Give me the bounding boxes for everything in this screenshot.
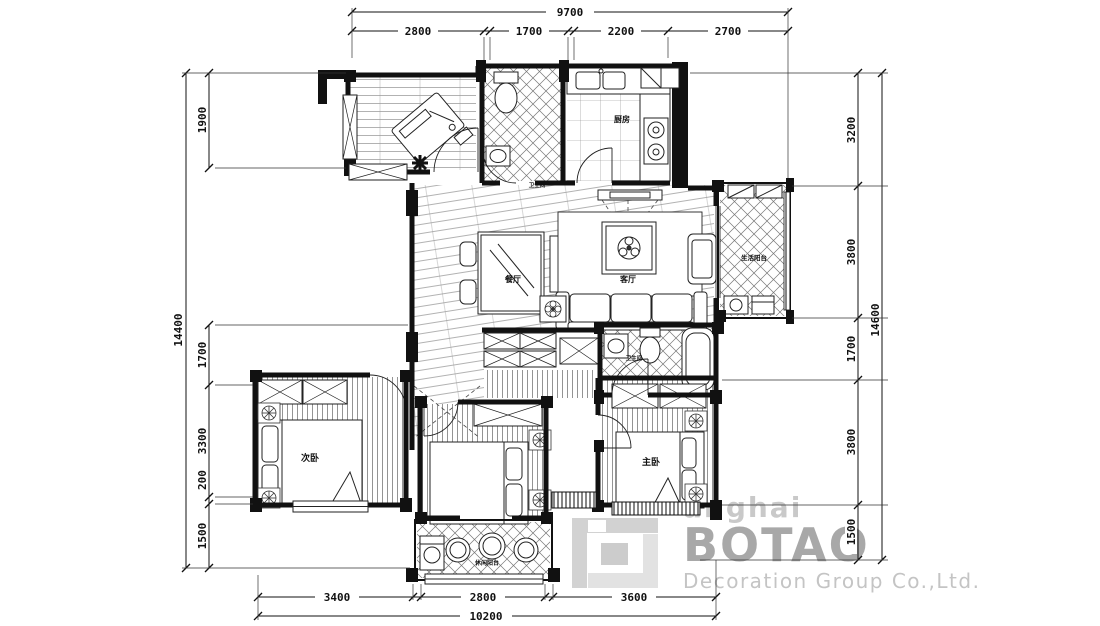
floor-plan-drawing: anghai BOTAO Decoration Group Co.,Ltd. (0, 0, 1100, 626)
botao-logo (572, 518, 658, 588)
sink-top (486, 146, 510, 166)
label-balcony-bottom: 休闲阳台 (474, 559, 499, 567)
side-table-flower-left (545, 301, 561, 317)
dim-left-seg-2: 3300 (196, 428, 209, 455)
dim-right-seg-2: 1700 (845, 336, 858, 363)
dressing-floor (484, 370, 596, 398)
window-studio-left (343, 95, 357, 159)
dim-bottom-seg-2: 3600 (621, 591, 648, 604)
window-kitchen (641, 68, 679, 88)
dim-right-seg-4: 1500 (845, 519, 858, 546)
dim-right-overall: 14600 (869, 303, 882, 336)
toilet-mid (640, 328, 660, 363)
watermark-subtitle: Decoration Group Co.,Ltd. (683, 569, 980, 593)
floor-plan-page: anghai BOTAO Decoration Group Co.,Ltd. (0, 0, 1100, 626)
label-bedroom-left: 次卧 (301, 452, 319, 464)
label-living: 客厅 (619, 274, 636, 284)
label-bath-top: 卫生间 (529, 181, 546, 189)
window-balcony-bottom (425, 574, 543, 584)
tv-cabinet (598, 190, 662, 200)
plant-icon (412, 155, 428, 171)
watermark-brand: BOTAO (683, 518, 870, 572)
window-bedroom-left (293, 501, 368, 512)
label-balcony-right: 生活阳台 (741, 253, 768, 262)
dim-right-seg-1: 3800 (845, 239, 858, 266)
armchair (688, 234, 716, 284)
dim-top-overall: 9700 (557, 6, 584, 19)
bedroom-master-furniture (612, 384, 707, 508)
label-dining: 餐厅 (504, 274, 521, 284)
dim-top-seg-2: 2200 (608, 25, 635, 38)
bedroom-left-furniture (258, 380, 362, 508)
dim-top-seg-1: 1700 (516, 25, 543, 38)
dim-bottom-seg-1: 2800 (470, 591, 497, 604)
label-bath-mid: 卫生间 (626, 354, 643, 362)
window-studio-bottom (349, 164, 407, 180)
dim-top-seg-0: 2800 (405, 25, 432, 38)
dim-right-seg-0: 3200 (845, 117, 858, 144)
window-between-bedrooms (552, 492, 596, 508)
bathtub (682, 328, 714, 390)
dim-bottom-seg-0: 3400 (324, 591, 351, 604)
label-kitchen: 厨房 (614, 114, 630, 124)
dim-right-seg-3: 3800 (845, 429, 858, 456)
toilet-top (494, 72, 518, 113)
dim-left-seg-0: 1900 (196, 107, 209, 134)
vanity-mid (604, 334, 628, 358)
dim-bottom-overall: 10200 (469, 610, 502, 623)
dim-left-seg-1: 1700 (196, 342, 209, 369)
railing-balcony-right (784, 192, 790, 310)
dim-left-seg-3: 200 (196, 470, 209, 490)
dim-top-seg-3: 2700 (715, 25, 742, 38)
window-master-bottom (612, 502, 700, 515)
dim-left-seg-4: 1500 (196, 523, 209, 550)
dim-left-overall: 14400 (172, 313, 185, 346)
hall-closets (484, 333, 598, 367)
label-bedroom-master: 主卧 (642, 456, 660, 468)
